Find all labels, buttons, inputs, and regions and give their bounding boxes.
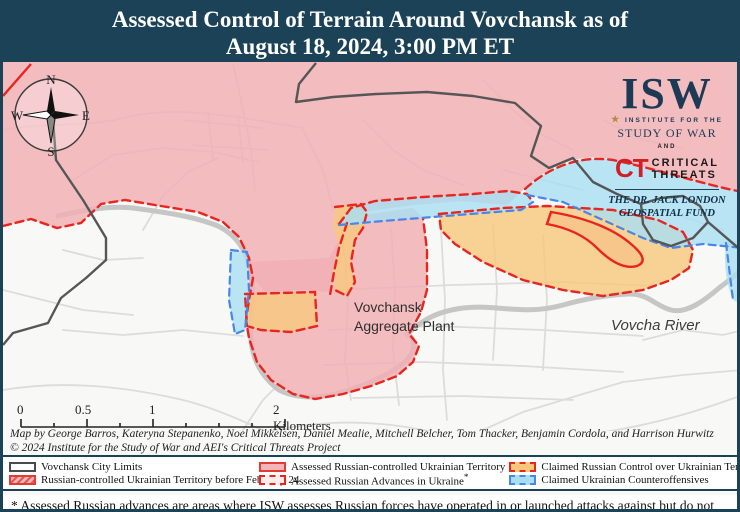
isw-study-of-war-text: STUDY OF WAR	[603, 126, 731, 141]
title-bar: Assessed Control of Terrain Around Vovch…	[3, 3, 737, 62]
legend-item-pre-feb24: Russian-controlled Ukrainian Territory b…	[9, 474, 255, 488]
critical-text: CRITICAL	[652, 157, 719, 169]
isw-institute-text: INSTITUTE FOR THE	[625, 117, 723, 124]
pre-feb24-swatch	[9, 475, 36, 485]
isw-star-icon: ★	[611, 114, 621, 124]
legend-item-russian-controlled: Assessed Russian-controlled Ukrainian Te…	[259, 460, 505, 473]
attribution: Map by George Barros, Kateryna Stepanenk…	[10, 428, 730, 455]
scale-tick-0: 0	[17, 402, 24, 418]
isw-logo-block: ISW ★ INSTITUTE FOR THE STUDY OF WAR AND…	[603, 74, 731, 220]
logo-divider	[615, 189, 719, 190]
title-line-1: Assessed Control of Terrain Around Vovch…	[3, 6, 737, 33]
legend-item-ukrainian-counteroffensives: Claimed Ukrainian Counteroffensives	[509, 474, 734, 488]
legend: Vovchansk City Limits Russian-controlled…	[3, 455, 737, 491]
legend-item-claimed-russian: Claimed Russian Control over Ukrainian T…	[509, 460, 734, 474]
map-report-window: Assessed Control of Terrain Around Vovch…	[0, 0, 740, 512]
claimed-russian-west-patch	[245, 292, 317, 332]
logo-and-text: AND	[603, 144, 731, 150]
isw-logo: ISW	[603, 74, 731, 114]
geospatial-fund-line1: THE DR. JACK LONDON	[603, 194, 731, 207]
vovcha-river-label: Vovcha River	[611, 317, 700, 334]
scale-tick-1: 1	[149, 402, 156, 418]
vovchansk-aggregate-plant-label: Vovchansk Aggregate Plant	[354, 298, 454, 336]
footnote: * Assessed Russian advances are areas wh…	[3, 495, 737, 512]
russian-controlled-swatch	[259, 462, 286, 472]
claimed-russian-swatch	[509, 462, 536, 472]
ukrainian-counteroffensives-swatch	[509, 475, 536, 485]
legend-item-russian-advances: Assessed Russian Advances in Ukraine*	[259, 473, 505, 487]
geospatial-fund-line2: GEOSPATIAL FUND	[603, 207, 731, 220]
critical-threats-ct-logo: CT	[615, 153, 648, 184]
svg-text:N: N	[46, 72, 56, 87]
scale-tick-05: 0.5	[75, 402, 91, 418]
legend-item-city-limits: Vovchansk City Limits	[9, 460, 255, 474]
svg-text:E: E	[82, 108, 90, 123]
city-limits-swatch	[9, 462, 36, 472]
attribution-line2: © 2024 Institute for the Study of War an…	[10, 442, 730, 456]
svg-text:W: W	[11, 108, 24, 123]
attribution-line1: Map by George Barros, Kateryna Stepanenk…	[10, 428, 730, 442]
threats-text: THREATS	[652, 169, 719, 181]
map-area: N S W E ISW ★ INSTITUTE FOR THE STUDY OF…	[3, 62, 737, 431]
russian-advances-swatch	[259, 475, 286, 485]
title-line-2: August 18, 2024, 3:00 PM ET	[3, 33, 737, 60]
svg-text:S: S	[47, 144, 54, 159]
